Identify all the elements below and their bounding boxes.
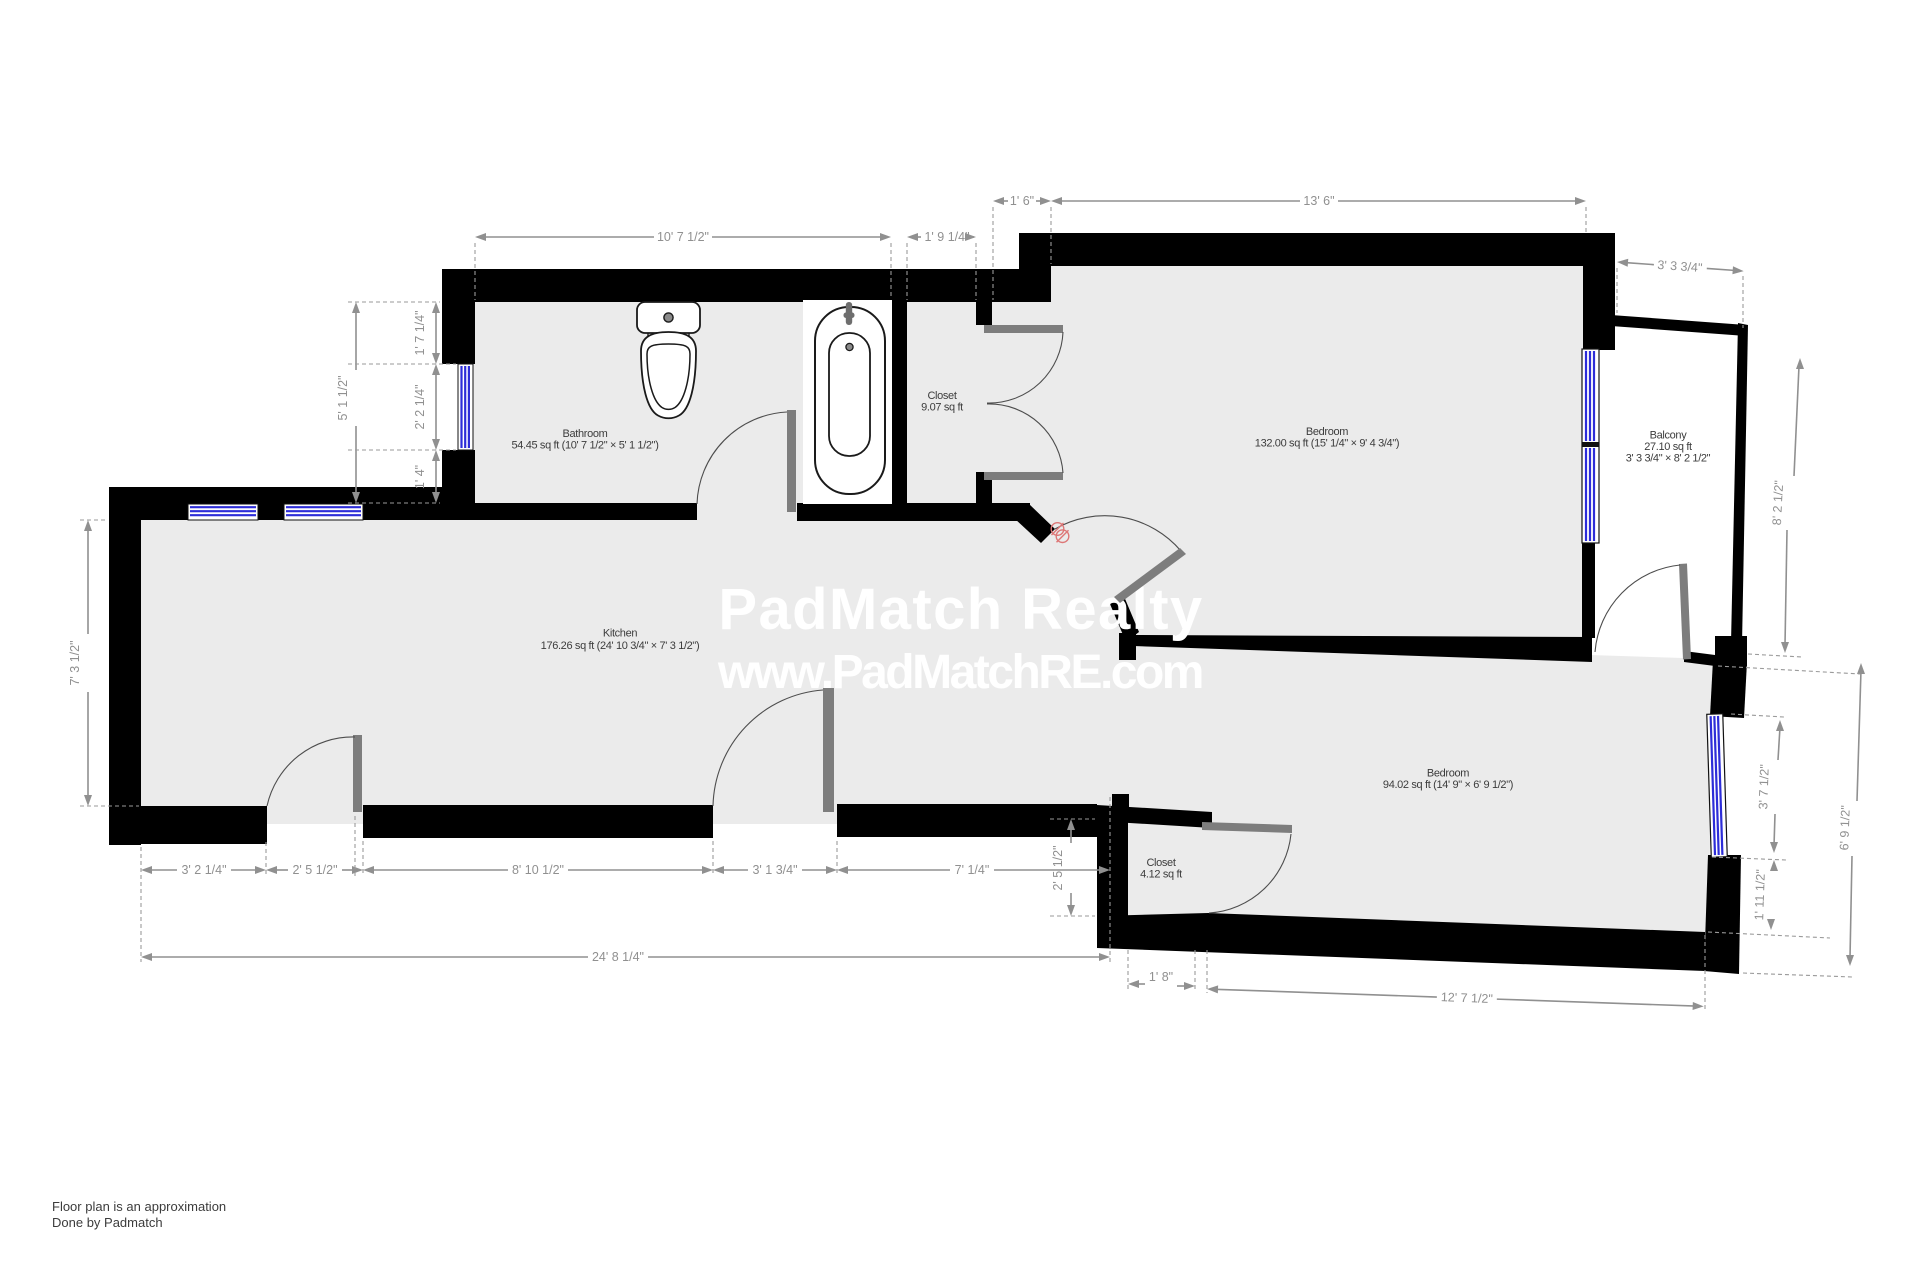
svg-text:1' 6": 1' 6" (1010, 194, 1034, 208)
svg-text:3' 3 3/4" × 8' 2 1/2": 3' 3 3/4" × 8' 2 1/2" (1626, 452, 1711, 464)
svg-text:6' 9 1/2": 6' 9 1/2" (1837, 805, 1853, 851)
svg-text:Bedroom: Bedroom (1306, 426, 1348, 438)
svg-text:1' 4": 1' 4" (413, 465, 427, 489)
svg-text:4.12 sq ft: 4.12 sq ft (1140, 869, 1182, 881)
svg-text:1' 7 1/4": 1' 7 1/4" (413, 310, 427, 355)
svg-text:Bathroom: Bathroom (563, 428, 608, 440)
svg-text:Closet: Closet (1146, 857, 1175, 869)
svg-text:Kitchen: Kitchen (603, 628, 637, 640)
svg-text:Balcony: Balcony (1650, 430, 1688, 442)
svg-text:7' 3 1/2": 7' 3 1/2" (68, 640, 82, 685)
svg-text:24' 8 1/4": 24' 8 1/4" (592, 950, 644, 964)
svg-text:132.00 sq ft (15' 1/4" × 9' 4: 132.00 sq ft (15' 1/4" × 9' 4 3/4") (1255, 438, 1399, 450)
svg-text:94.02 sq ft (14' 9" × 6' 9 1/2: 94.02 sq ft (14' 9" × 6' 9 1/2") (1383, 779, 1513, 791)
svg-text:Done by Padmatch: Done by Padmatch (52, 1215, 163, 1230)
svg-text:3' 2 1/4": 3' 2 1/4" (181, 863, 226, 877)
svg-text:7' 1/4": 7' 1/4" (955, 863, 990, 877)
svg-text:13' 6": 13' 6" (1303, 194, 1334, 208)
svg-text:10' 7 1/2": 10' 7 1/2" (657, 230, 709, 244)
svg-text:www.PadMatchRE.com: www.PadMatchRE.com (717, 646, 1202, 699)
svg-text:12' 7 1/2": 12' 7 1/2" (1441, 990, 1493, 1006)
svg-text:3' 7 1/2": 3' 7 1/2" (1756, 764, 1772, 810)
svg-text:1' 9 1/4": 1' 9 1/4" (924, 230, 969, 244)
svg-text:5' 1 1/2": 5' 1 1/2" (336, 375, 350, 420)
svg-text:27.10 sq ft: 27.10 sq ft (1644, 441, 1692, 453)
svg-text:9.07 sq ft: 9.07 sq ft (921, 402, 963, 414)
svg-text:8' 2 1/2": 8' 2 1/2" (1770, 480, 1786, 526)
svg-text:54.45 sq ft (10' 7 1/2" × 5' 1: 54.45 sq ft (10' 7 1/2" × 5' 1 1/2") (511, 440, 658, 452)
svg-text:8' 10 1/2": 8' 10 1/2" (512, 863, 564, 877)
svg-text:176.26 sq ft (24' 10 3/4" × 7': 176.26 sq ft (24' 10 3/4" × 7' 3 1/2") (541, 640, 700, 652)
svg-text:2' 2 1/4": 2' 2 1/4" (413, 384, 427, 429)
svg-text:Bedroom: Bedroom (1427, 768, 1469, 780)
svg-text:2' 5 1/2": 2' 5 1/2" (1051, 845, 1065, 890)
svg-text:3' 1 3/4": 3' 1 3/4" (752, 863, 797, 877)
svg-text:2' 5 1/2": 2' 5 1/2" (292, 863, 337, 877)
svg-text:Floor plan is an approximation: Floor plan is an approximation (52, 1199, 226, 1214)
svg-text:1' 8": 1' 8" (1149, 970, 1173, 984)
svg-text:1' 11 1/2": 1' 11 1/2" (1752, 869, 1768, 921)
svg-text:Closet: Closet (927, 390, 956, 402)
